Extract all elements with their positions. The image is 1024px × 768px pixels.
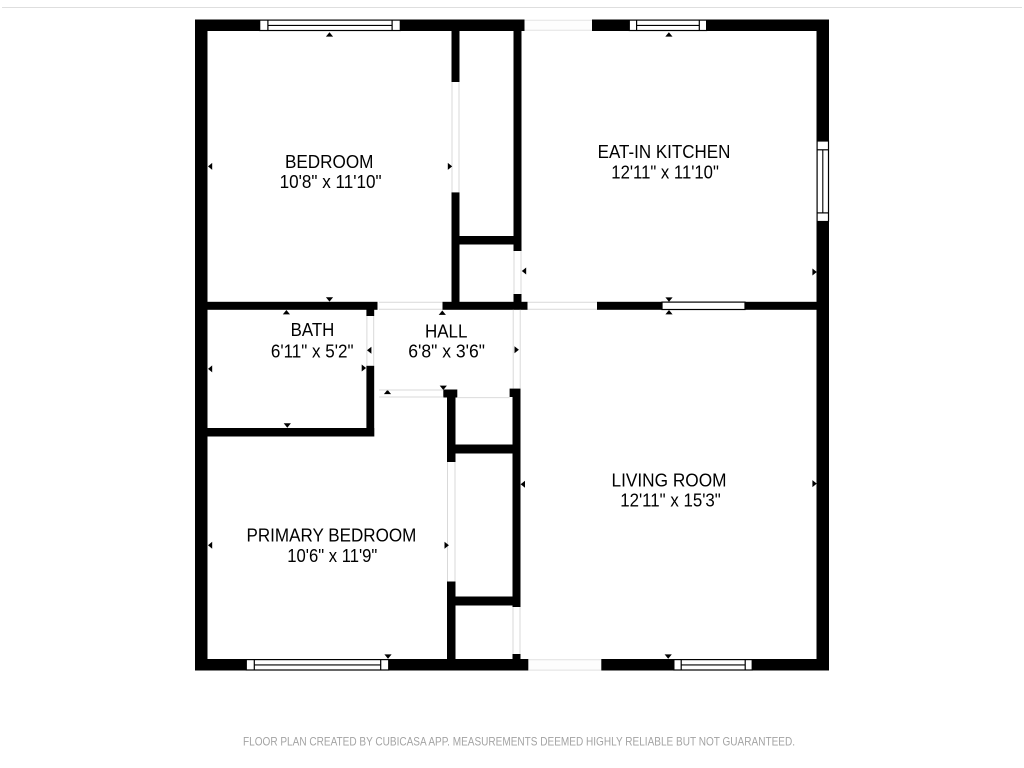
- svg-text:PRIMARY BEDROOM: PRIMARY BEDROOM: [247, 525, 417, 545]
- svg-text:10'6" x 11'9": 10'6" x 11'9": [287, 546, 377, 566]
- svg-text:HALL: HALL: [425, 321, 468, 341]
- svg-text:EAT-IN KITCHEN: EAT-IN KITCHEN: [598, 142, 731, 162]
- svg-text:BEDROOM: BEDROOM: [285, 152, 374, 172]
- svg-text:6'11" x 5'2": 6'11" x 5'2": [271, 341, 354, 361]
- svg-text:BATH: BATH: [291, 320, 335, 340]
- svg-text:10'8" x 11'10": 10'8" x 11'10": [280, 172, 382, 192]
- svg-text:12'11" x 11'10": 12'11" x 11'10": [611, 162, 719, 182]
- svg-text:FLOOR PLAN CREATED BY CUBICASA: FLOOR PLAN CREATED BY CUBICASA APP. MEAS…: [243, 735, 795, 749]
- svg-text:12'11" x 15'3": 12'11" x 15'3": [620, 491, 721, 511]
- svg-text:LIVING ROOM: LIVING ROOM: [612, 470, 727, 490]
- svg-text:6'8" x 3'6": 6'8" x 3'6": [408, 342, 485, 362]
